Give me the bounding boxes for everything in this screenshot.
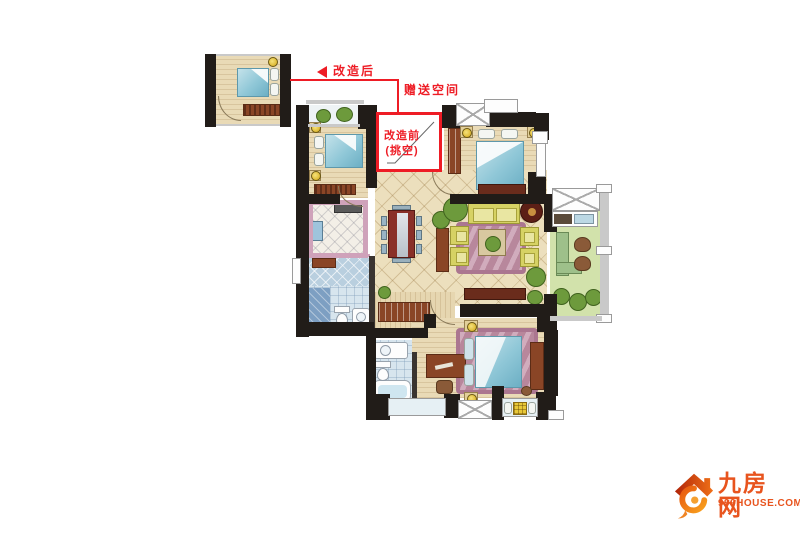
armchair xyxy=(450,247,469,266)
wicker-chair xyxy=(574,237,591,252)
sink-basin xyxy=(356,312,366,322)
plant xyxy=(526,267,546,287)
wall xyxy=(544,330,558,396)
stool xyxy=(521,386,532,396)
balcony-cabinet-blue xyxy=(574,214,594,224)
dining-bench xyxy=(392,205,411,210)
plant xyxy=(336,107,353,122)
desk xyxy=(426,354,466,378)
toilet xyxy=(377,368,389,381)
balcony-cabinet-dark xyxy=(554,214,572,224)
pillar xyxy=(596,246,612,255)
site-logo: 九房网 999HOUSE.COM xyxy=(672,467,792,525)
bay-window-master-left xyxy=(388,398,446,416)
wall xyxy=(308,194,340,204)
left-wall-window xyxy=(292,258,301,284)
inset-lamp xyxy=(268,57,278,67)
window-sill xyxy=(308,124,360,127)
bay-pillow xyxy=(504,402,512,414)
inset-wall-right xyxy=(280,54,291,127)
dining-table xyxy=(388,210,415,258)
utility-wall xyxy=(306,254,370,257)
logo-site-url: 999HOUSE.COM xyxy=(718,498,800,509)
floor-plan-page: 改造后 赠送空间 改造前 (挑空) xyxy=(0,0,800,533)
balcony-sill xyxy=(550,316,602,321)
inset-wall-left xyxy=(205,54,216,127)
corner-cap xyxy=(548,410,564,420)
plant xyxy=(316,109,331,123)
wall xyxy=(368,394,390,420)
plant xyxy=(527,290,543,305)
wall xyxy=(450,194,536,204)
armchair xyxy=(450,226,469,245)
plant xyxy=(378,286,391,299)
left-arrow-icon xyxy=(317,66,327,78)
shower-area xyxy=(308,288,330,326)
side-window xyxy=(536,143,546,177)
master-bed xyxy=(462,334,524,390)
renovation-after-label: 改造后 xyxy=(317,62,375,79)
wall xyxy=(424,314,436,328)
lamp xyxy=(467,322,477,332)
master-dresser xyxy=(530,342,544,390)
bath2-divider-wall xyxy=(412,352,417,400)
renovation-link-line-horizontal xyxy=(290,79,399,81)
wall xyxy=(486,112,536,127)
window-sill xyxy=(306,100,364,104)
toilet-tank xyxy=(375,361,391,368)
washer xyxy=(312,258,336,268)
renovated-room-inset xyxy=(205,54,291,127)
armchair xyxy=(520,248,539,267)
dining-chair xyxy=(381,216,387,226)
pillar xyxy=(596,184,612,193)
side-shelf xyxy=(436,228,449,272)
bay-cushion-yellow xyxy=(513,402,527,415)
logo-house-icon xyxy=(672,467,716,523)
lamp xyxy=(311,171,321,181)
tv-cabinet xyxy=(464,288,526,300)
inset-window-sill xyxy=(216,54,280,56)
gift-space-label: 赠送空间 xyxy=(404,81,460,98)
wall xyxy=(296,105,309,337)
dining-bench xyxy=(392,258,411,263)
desk-chair xyxy=(436,380,453,394)
inset-bed xyxy=(237,66,280,99)
dining-chair xyxy=(381,230,387,240)
void-space-box: 改造前 (挑空) xyxy=(376,112,442,172)
bay-window-ledge xyxy=(484,99,518,113)
wall xyxy=(296,322,374,336)
logo-site-name: 九房网 xyxy=(718,471,792,519)
balcony-bay-window xyxy=(552,188,600,211)
void-space-label: 改造前 (挑空) xyxy=(379,129,425,159)
wall xyxy=(460,304,548,317)
entry-cabinet xyxy=(458,400,492,419)
bedroom-left-bed xyxy=(312,132,364,170)
dining-chair xyxy=(416,244,422,254)
kitchen-walls xyxy=(308,200,368,258)
after-label-text: 改造后 xyxy=(333,64,375,78)
lamp xyxy=(462,128,472,138)
dining-chair xyxy=(381,244,387,254)
bedroom-right-bed xyxy=(474,126,526,192)
inset-window-sill xyxy=(216,124,280,126)
toilet-tank xyxy=(334,306,350,313)
hallway-wardrobe xyxy=(378,302,430,322)
inset-dresser xyxy=(243,104,280,116)
coffee-table-plant xyxy=(485,236,501,252)
dining-chair xyxy=(416,230,422,240)
armchair xyxy=(520,227,539,246)
bay-pillow xyxy=(528,402,536,414)
renovation-link-line-vertical xyxy=(397,79,399,113)
wicker-chair xyxy=(574,256,591,271)
dining-chair xyxy=(416,216,422,226)
sink-basin xyxy=(380,345,391,356)
